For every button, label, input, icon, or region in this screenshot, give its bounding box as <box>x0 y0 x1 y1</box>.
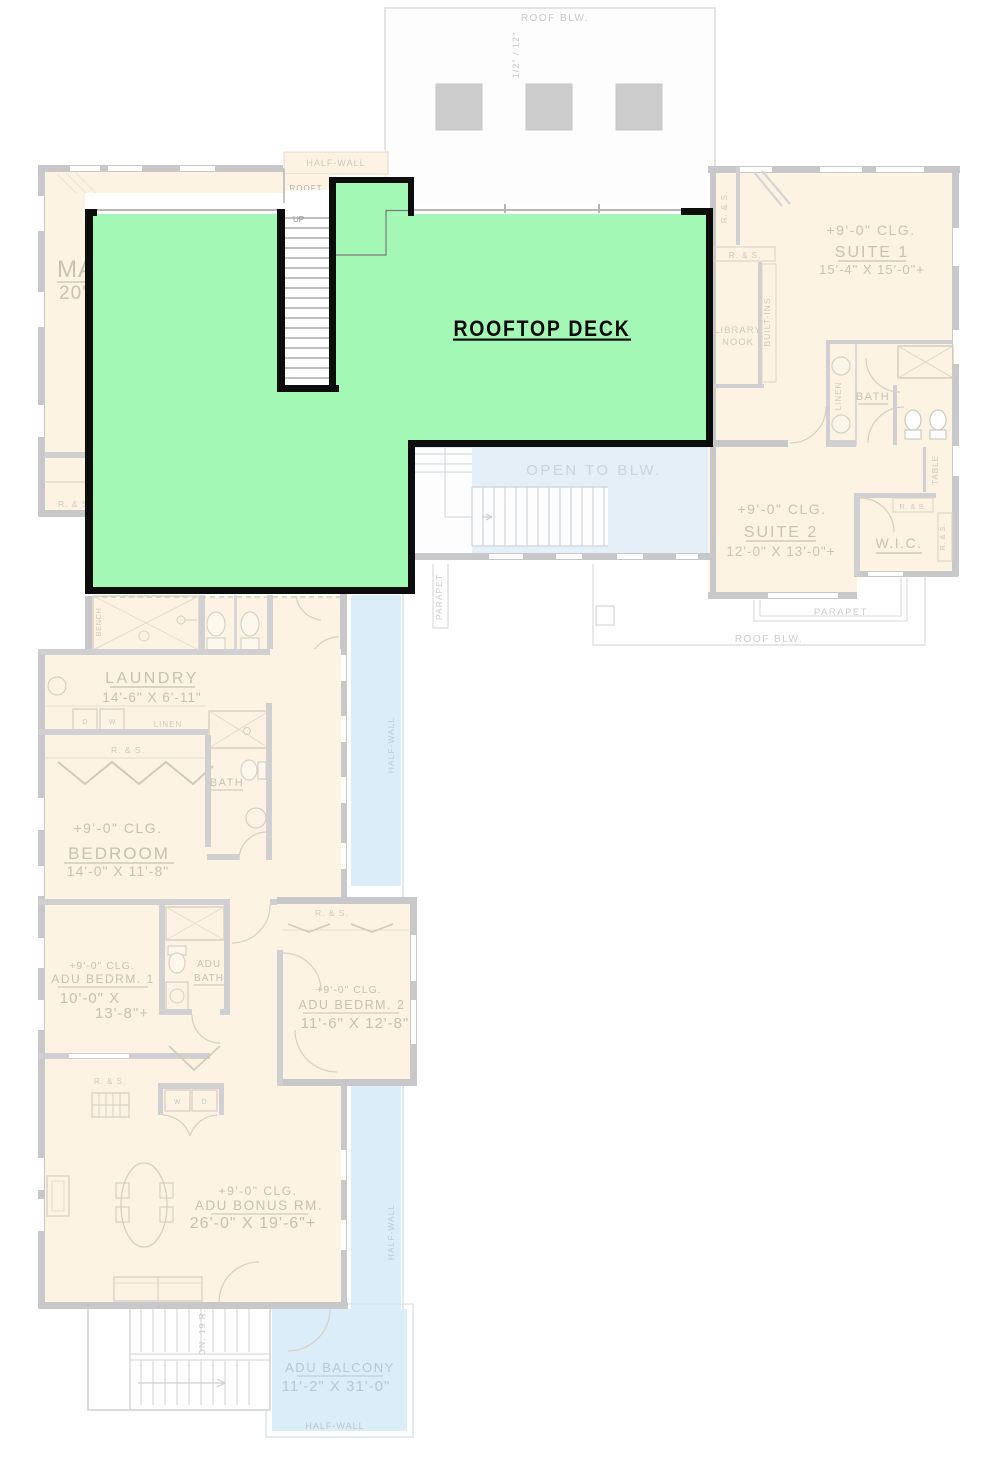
svg-text:R. & S.: R. & S. <box>111 745 145 755</box>
svg-text:+9'-0" CLG.: +9'-0" CLG. <box>69 960 134 972</box>
svg-text:W: W <box>174 1099 181 1106</box>
svg-text:HALF-WALL: HALF-WALL <box>386 717 396 773</box>
svg-text:ADU BEDRM. 2: ADU BEDRM. 2 <box>299 998 406 1012</box>
svg-text:+9'-0" CLG.: +9'-0" CLG. <box>73 820 162 836</box>
svg-text:+9'-0" CLG.: +9'-0" CLG. <box>826 222 915 238</box>
svg-text:R. & S.: R. & S. <box>899 502 926 511</box>
svg-text:BATH: BATH <box>194 973 224 984</box>
svg-text:R. & S.: R. & S. <box>315 908 349 918</box>
svg-text:SUITE 1: SUITE 1 <box>835 244 909 261</box>
svg-text:TABLE: TABLE <box>931 455 940 485</box>
svg-text:D: D <box>201 1099 206 1106</box>
svg-text:HALF-WALL: HALF-WALL <box>386 1204 396 1260</box>
svg-text:BUILT-INS: BUILT-INS <box>762 298 772 347</box>
svg-text:SUITE 2: SUITE 2 <box>744 524 818 541</box>
svg-text:PARAPET: PARAPET <box>434 574 444 620</box>
svg-text:11'-6" X 12'-8": 11'-6" X 12'-8" <box>301 1015 410 1032</box>
svg-text:ROOF BLW.: ROOF BLW. <box>521 13 589 24</box>
svg-text:+9'-0" CLG.: +9'-0" CLG. <box>737 501 826 517</box>
svg-text:LIBRARY: LIBRARY <box>714 325 761 336</box>
svg-text:HALF-WALL: HALF-WALL <box>305 1421 364 1431</box>
svg-text:R. & S.: R. & S. <box>94 1077 126 1086</box>
svg-text:R. & S.: R. & S. <box>720 191 729 223</box>
svg-text:PARAPET: PARAPET <box>814 607 868 618</box>
svg-text:14'-0" X 11'-8": 14'-0" X 11'-8" <box>67 863 169 879</box>
svg-text:+9'-0" CLG.: +9'-0" CLG. <box>316 984 381 996</box>
svg-text:ROOFTOP DECK: ROOFTOP DECK <box>454 316 631 341</box>
svg-text:R. & S.: R. & S. <box>938 523 947 550</box>
svg-text:BENCH: BENCH <box>94 608 103 637</box>
svg-text:12'-0" X 13'-0"+: 12'-0" X 13'-0"+ <box>726 544 835 559</box>
svg-text:LINEN: LINEN <box>834 382 843 411</box>
svg-text:NOOK: NOOK <box>722 337 754 348</box>
svg-text:BATH: BATH <box>856 391 891 403</box>
svg-text:ADU BONUS RM.: ADU BONUS RM. <box>195 1198 323 1213</box>
svg-text:LINEN: LINEN <box>154 720 183 729</box>
svg-text:1/2" / 12": 1/2" / 12" <box>511 32 521 78</box>
svg-text:11'-2" X 31'-0": 11'-2" X 31'-0" <box>282 1378 391 1395</box>
svg-text:15'-4" X 15'-0"+: 15'-4" X 15'-0"+ <box>819 262 925 277</box>
svg-text:ADU BEDRM. 1: ADU BEDRM. 1 <box>51 972 154 986</box>
svg-text:D: D <box>82 719 87 726</box>
svg-text:UP: UP <box>293 215 304 224</box>
svg-text:BEDROOM: BEDROOM <box>68 844 170 863</box>
svg-text:26'-0" X 19'-6"+: 26'-0" X 19'-6"+ <box>190 1215 316 1232</box>
svg-text:13'-8"+: 13'-8"+ <box>95 1005 149 1022</box>
svg-text:W: W <box>109 719 116 726</box>
svg-text:BATH: BATH <box>210 777 245 789</box>
svg-text:ADU BALCONY: ADU BALCONY <box>285 1360 395 1375</box>
svg-text:HALF-WALL: HALF-WALL <box>306 158 365 168</box>
svg-text:14'-6" X 6'-11": 14'-6" X 6'-11" <box>102 690 201 705</box>
svg-text:LAUNDRY: LAUNDRY <box>105 670 199 687</box>
svg-text:OPEN TO BLW.: OPEN TO BLW. <box>526 462 662 479</box>
svg-text:+9'-0" CLG.: +9'-0" CLG. <box>219 1184 298 1198</box>
svg-text:ROOF BLW.: ROOF BLW. <box>735 634 803 645</box>
svg-text:R. & S.: R. & S. <box>729 251 761 260</box>
svg-text:W.I.C.: W.I.C. <box>875 535 922 551</box>
svg-text:ADU: ADU <box>197 959 221 970</box>
svg-text:DN. 19 R.: DN. 19 R. <box>197 1309 207 1355</box>
